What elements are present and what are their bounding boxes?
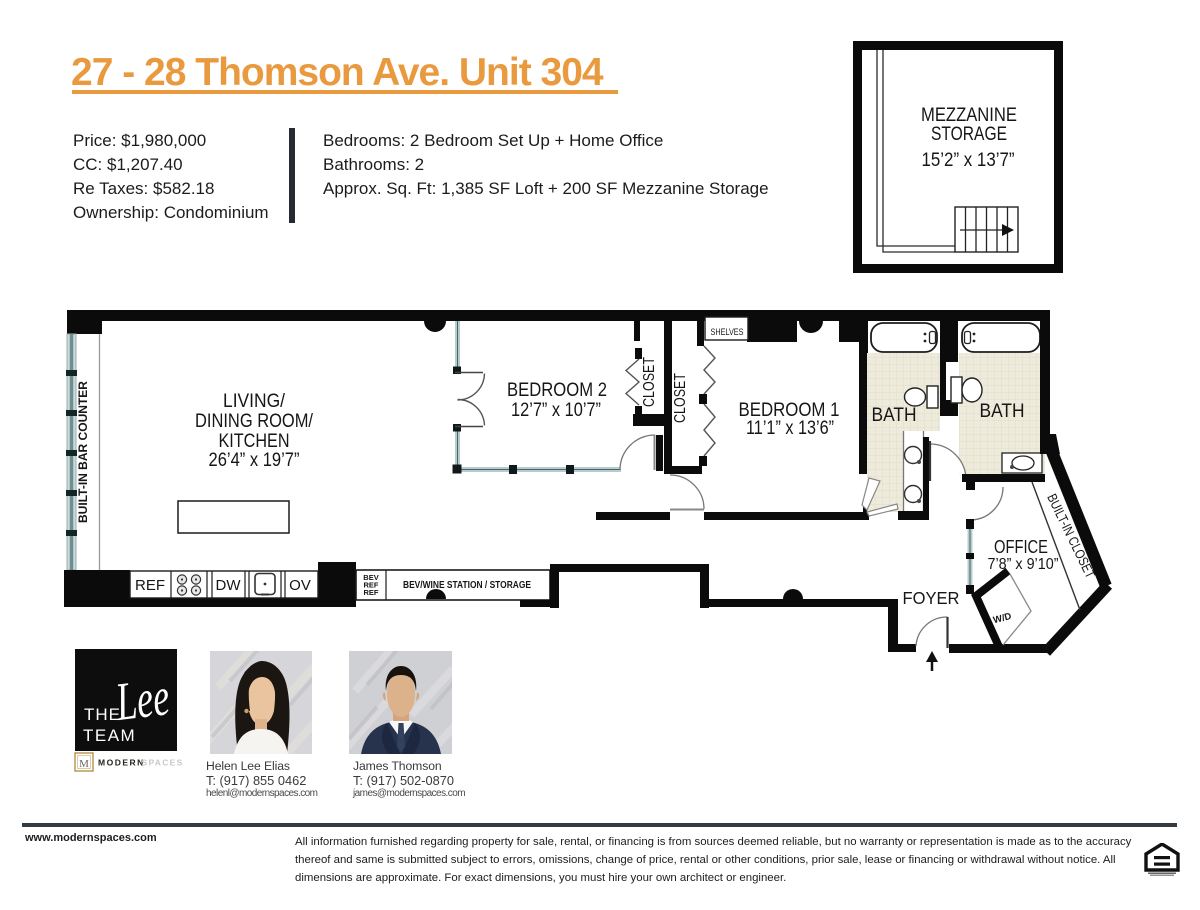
svg-text:BATH: BATH — [980, 401, 1025, 422]
svg-text:11’1” x 13’6”: 11’1” x 13’6” — [746, 417, 834, 439]
svg-text:SPACES: SPACES — [142, 758, 184, 768]
svg-text:REF: REF — [135, 577, 165, 594]
svg-text:DINING ROOM/: DINING ROOM/ — [195, 410, 313, 432]
svg-text:FOYER: FOYER — [903, 588, 960, 608]
svg-text:CLOSET: CLOSET — [672, 373, 689, 423]
svg-text:DW: DW — [216, 577, 242, 594]
svg-text:26’4” x 19’7”: 26’4” x 19’7” — [209, 449, 300, 471]
svg-text:15’2” x 13’7”: 15’2” x 13’7” — [922, 150, 1015, 171]
svg-text:BUILT-IN BAR COUNTER: BUILT-IN BAR COUNTER — [78, 380, 90, 523]
svg-text:REF: REF — [364, 588, 379, 597]
svg-text:STORAGE: STORAGE — [931, 124, 1007, 145]
svg-text:BEDROOM 2: BEDROOM 2 — [507, 379, 607, 401]
svg-text:SHELVES: SHELVES — [711, 327, 744, 337]
svg-text:Lee: Lee — [112, 666, 173, 732]
svg-text:LIVING/: LIVING/ — [223, 390, 286, 412]
svg-text:THE: THE — [84, 705, 121, 724]
svg-text:BEV/WINE STATION / STORAGE: BEV/WINE STATION / STORAGE — [403, 579, 531, 591]
svg-text:OV: OV — [289, 577, 311, 594]
svg-text:BATH: BATH — [872, 405, 917, 426]
svg-text:MODERN: MODERN — [98, 758, 145, 768]
svg-text:MEZZANINE: MEZZANINE — [921, 105, 1017, 126]
svg-text:CLOSET: CLOSET — [641, 357, 658, 407]
svg-text:12’7” x 10’7”: 12’7” x 10’7” — [511, 399, 601, 421]
svg-text:OFFICE: OFFICE — [994, 536, 1048, 557]
svg-text:M: M — [79, 758, 89, 770]
svg-text:7’8” x 9’10”: 7’8” x 9’10” — [988, 556, 1059, 573]
